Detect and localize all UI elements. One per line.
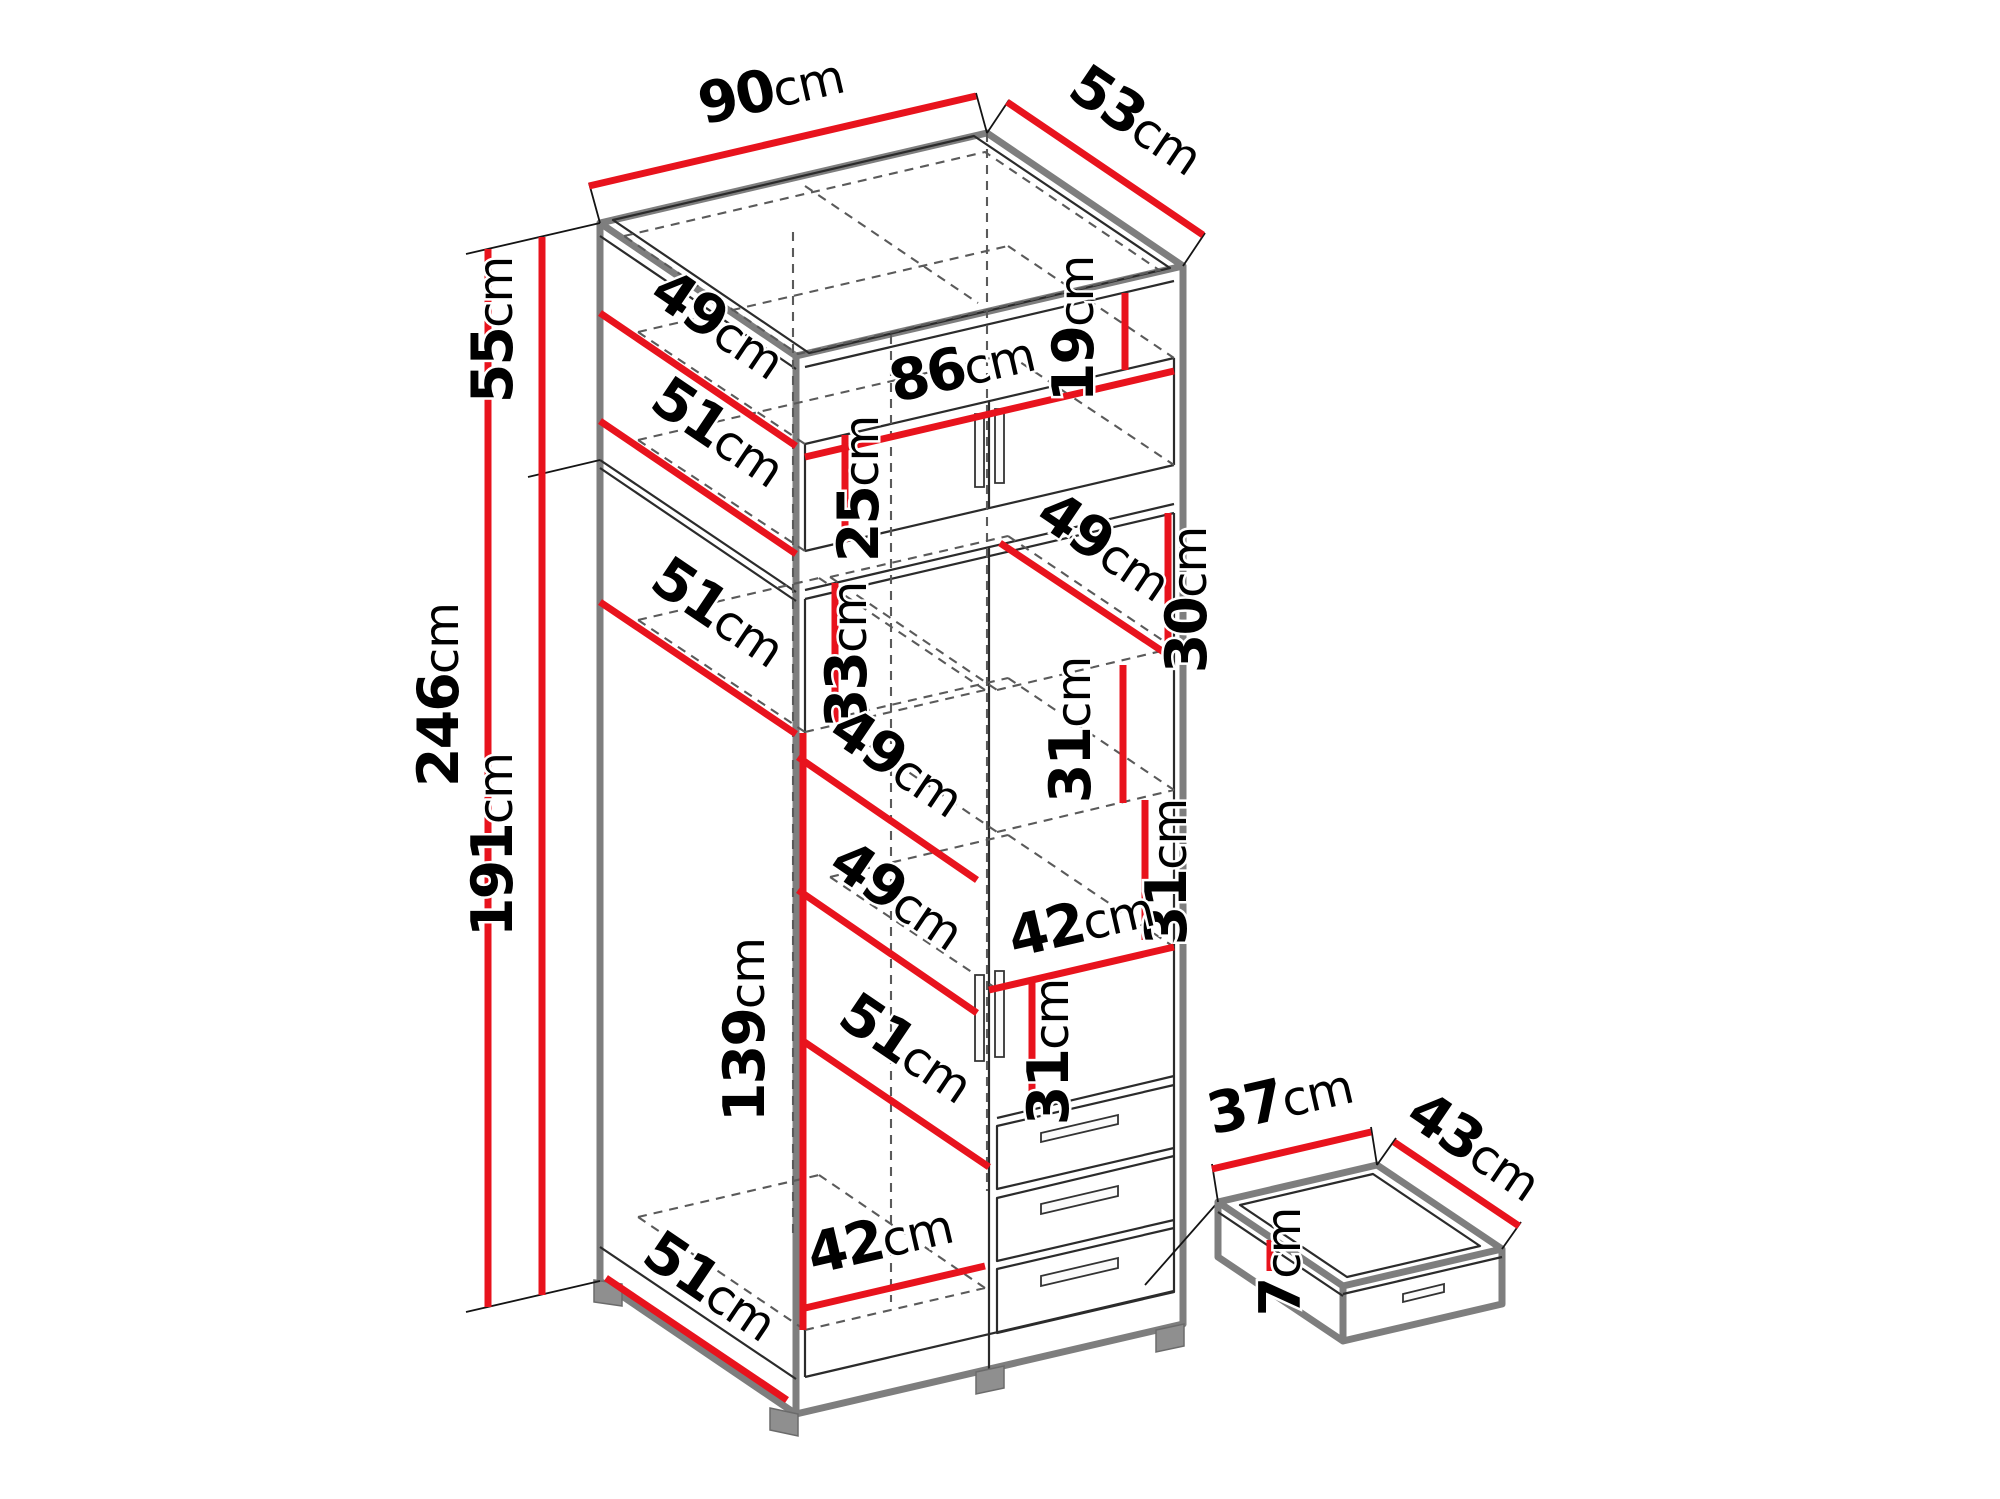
label-drawer-width: 37cm xyxy=(1201,1051,1359,1148)
label-width-top: 90cm xyxy=(692,41,850,138)
label-hanging-space-height: 139cm xyxy=(712,938,778,1122)
label-niche-height: 19cm xyxy=(1041,256,1107,402)
wardrobe-dimension-diagram: 90cm 53cm 55cm 246cm 191cm 49cm 51cm 86c… xyxy=(0,0,2000,1499)
dimension-extension-lines xyxy=(466,93,1521,1312)
dimension-lines xyxy=(488,96,1519,1400)
label-center-shelf1-depth: 49cm xyxy=(818,694,976,831)
label-height-lower-section: 191cm xyxy=(460,753,526,937)
label-top-doors-height: 25cm xyxy=(826,416,892,562)
label-center-shelf2-depth: 49cm xyxy=(818,827,976,964)
label-bottom-depth: 51cm xyxy=(631,1218,789,1355)
label-right-shelf-depth: 49cm xyxy=(1025,478,1183,615)
label-height-top-section: 55cm xyxy=(460,257,526,403)
detached-drawer xyxy=(1145,1165,1502,1341)
label-right-comp2-height: 31cm xyxy=(1038,657,1104,803)
diagram-canvas: 90cm 53cm 55cm 246cm 191cm 49cm 51cm 86c… xyxy=(0,0,2000,1499)
label-drawer-height: 7cm xyxy=(1248,1208,1314,1317)
label-niche-depth: 49cm xyxy=(639,256,797,393)
drawer-front-handle xyxy=(1403,1284,1444,1302)
label-left-column-width: 42cm xyxy=(801,1191,959,1288)
label-right-comp4-height: 31cm xyxy=(1016,979,1082,1125)
label-mid-shelf-depth: 51cm xyxy=(639,544,797,681)
label-right-comp1-height: 30cm xyxy=(1154,527,1220,673)
label-height-total: 246cm xyxy=(406,603,472,787)
label-depth-top: 53cm xyxy=(1057,52,1215,189)
